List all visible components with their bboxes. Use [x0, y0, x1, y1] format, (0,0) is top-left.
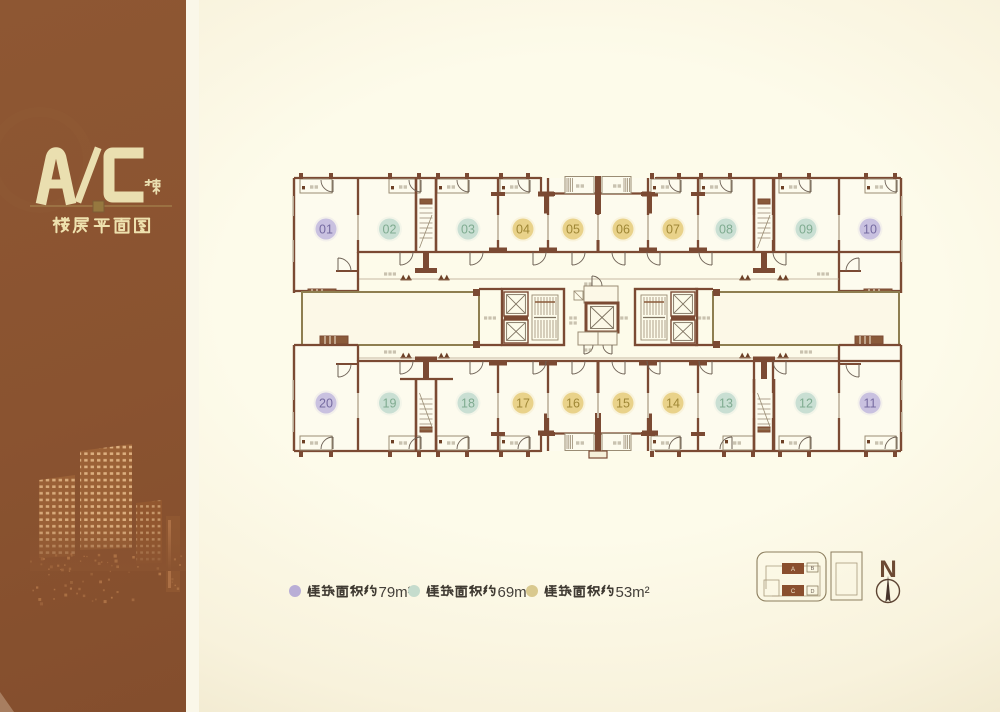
svg-text:14: 14	[666, 397, 680, 411]
svg-text:20: 20	[319, 397, 333, 411]
svg-text:17: 17	[516, 397, 530, 411]
svg-text:03: 03	[461, 223, 475, 237]
svg-text:09: 09	[799, 223, 813, 237]
svg-text:11: 11	[864, 397, 877, 411]
svg-text:53m²: 53m²	[616, 584, 650, 601]
svg-text:B: B	[811, 566, 815, 572]
svg-text:79m²: 79m²	[379, 584, 413, 601]
svg-text:04: 04	[516, 223, 530, 237]
svg-text:16: 16	[566, 397, 580, 411]
svg-text:D: D	[811, 589, 815, 595]
svg-text:A: A	[791, 567, 795, 573]
svg-text:10: 10	[863, 223, 877, 237]
svg-text:C: C	[791, 589, 796, 595]
svg-text:08: 08	[719, 223, 733, 237]
svg-text:05: 05	[566, 223, 580, 237]
svg-text:01: 01	[319, 223, 333, 237]
svg-text:13: 13	[719, 397, 733, 411]
svg-text:15: 15	[616, 397, 630, 411]
svg-text:18: 18	[461, 397, 475, 411]
svg-text:19: 19	[383, 397, 397, 411]
svg-text:02: 02	[383, 223, 397, 237]
svg-text:12: 12	[799, 397, 813, 411]
svg-text:07: 07	[666, 223, 680, 237]
svg-text:06: 06	[616, 223, 630, 237]
